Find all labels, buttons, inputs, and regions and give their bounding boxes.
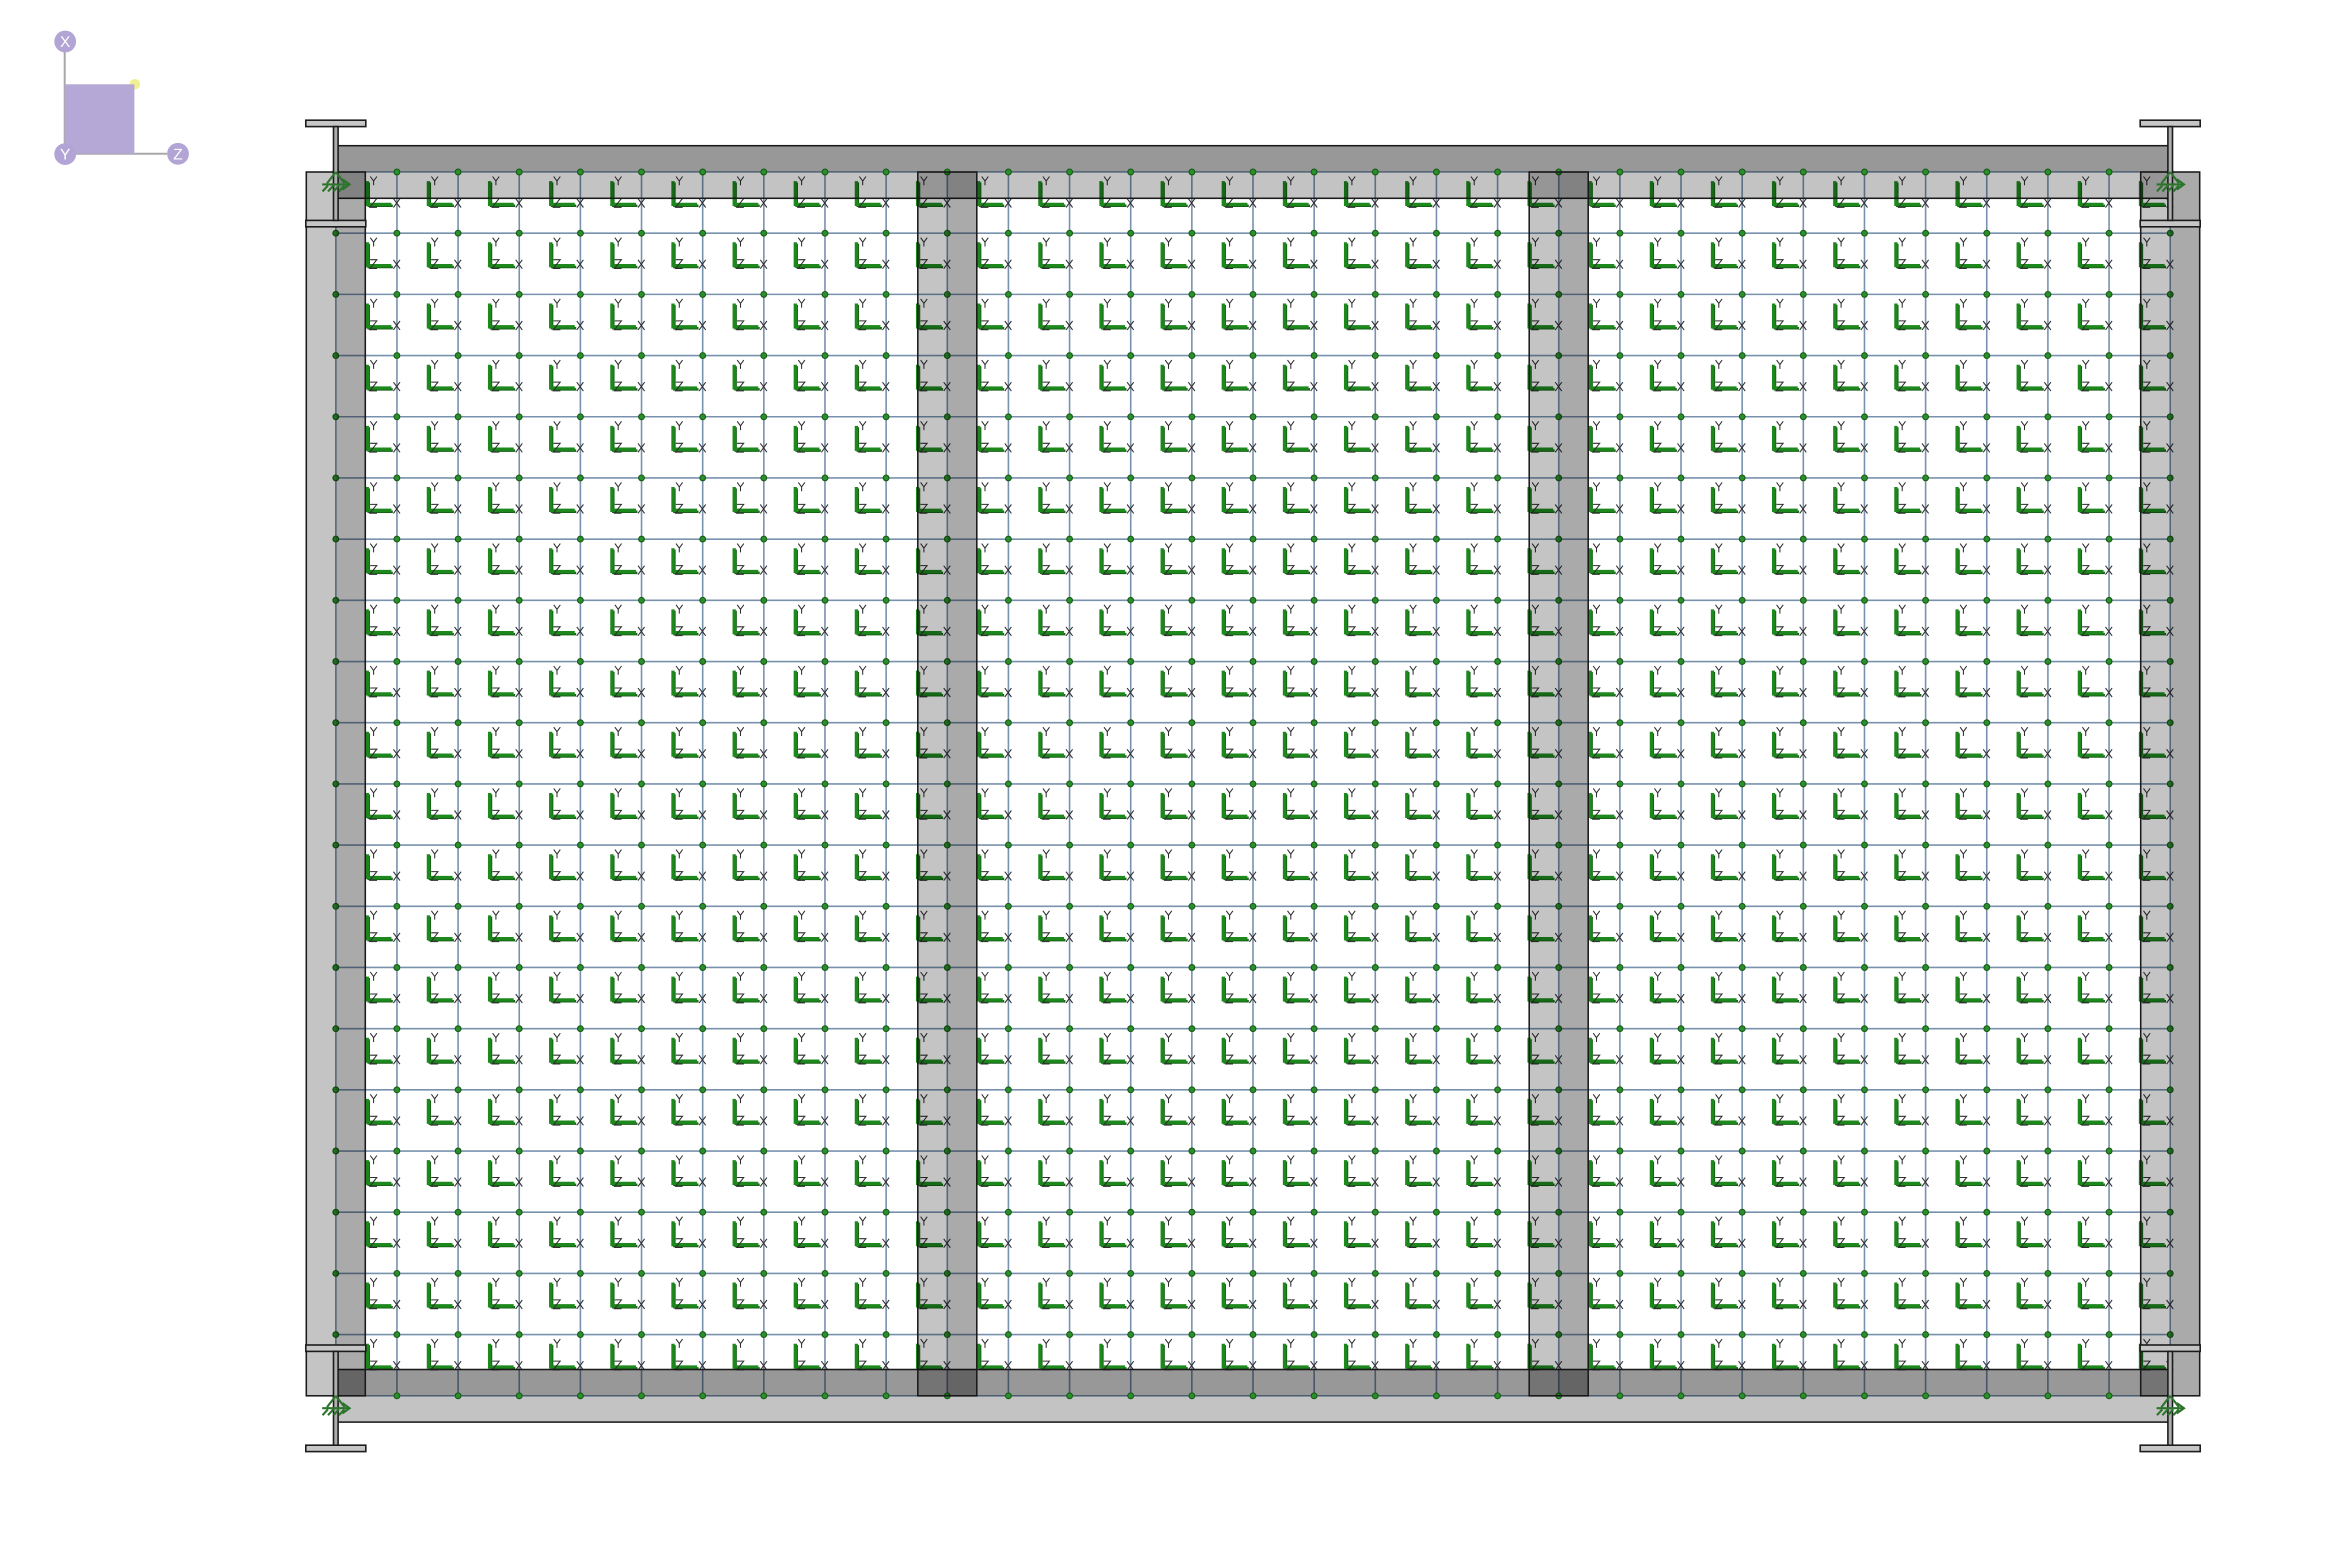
svg-text:Y: Y [60,147,70,164]
svg-text:X: X [60,34,71,51]
svg-text:Z: Z [173,146,182,163]
